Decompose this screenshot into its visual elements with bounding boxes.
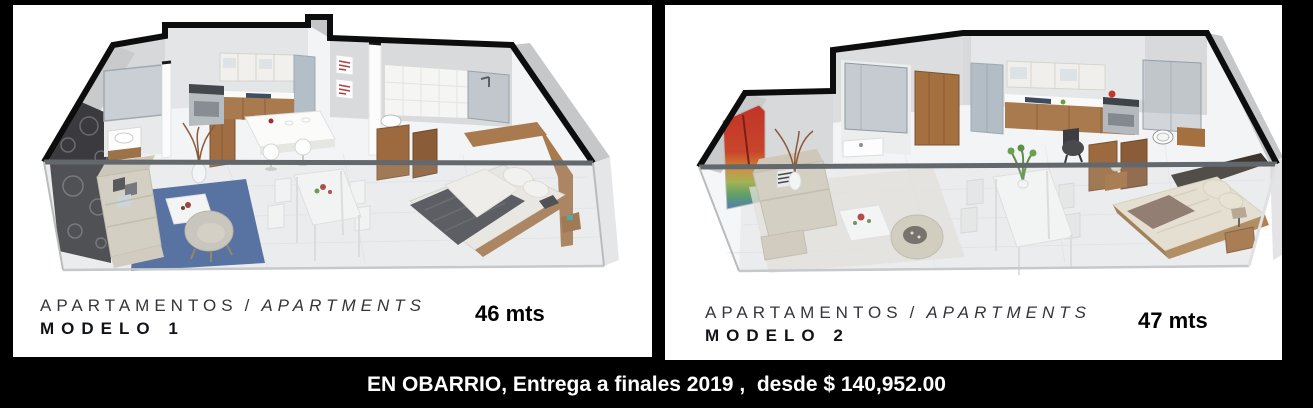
floorplan-modelo-1-render: [13, 5, 652, 305]
entry-door: [915, 71, 959, 145]
panel-modelo-1: APARTAMENTOS/APARTMENTS MODELO 1 46 mts: [13, 5, 652, 357]
bathroom-shower: [841, 60, 911, 157]
floorplan-modelo-2-render: [665, 5, 1282, 305]
bathroom-entry: [104, 65, 162, 161]
area-label-modelo-2: 47 mts: [1138, 308, 1208, 334]
caption-separator: /: [910, 303, 920, 322]
caption-secondary-label: APARTMENTS: [261, 296, 426, 315]
caption-modelo-2: APARTAMENTOS/APARTMENTS MODELO 2: [705, 303, 1091, 346]
glass-facade: [699, 164, 1277, 271]
caption-primary-label: APARTAMENTOS: [705, 303, 903, 322]
caption-primary-label: APARTAMENTOS: [40, 296, 238, 315]
glass-facade: [44, 162, 604, 270]
footer-text: EN OBARRIO, Entrega a finales 2019 , des…: [0, 373, 1313, 397]
panel-modelo-2: APARTAMENTOS/APARTMENTS MODELO 2 47 mts: [665, 5, 1282, 360]
real-estate-flyer: { "panels": [ { "caption_primary": "APAR…: [0, 0, 1313, 408]
caption-secondary-label: APARTMENTS: [926, 303, 1091, 322]
caption-modelo-1: APARTAMENTOS/APARTMENTS MODELO 1: [40, 296, 426, 339]
caption-line1: APARTAMENTOS/APARTMENTS: [40, 296, 426, 316]
model-label: MODELO 2: [705, 326, 1091, 346]
model-label: MODELO 1: [40, 319, 426, 339]
partition-wall: [162, 62, 171, 158]
caption-separator: /: [245, 296, 255, 315]
caption-line1: APARTAMENTOS/APARTMENTS: [705, 303, 1091, 323]
area-label-modelo-1: 46 mts: [475, 301, 545, 327]
